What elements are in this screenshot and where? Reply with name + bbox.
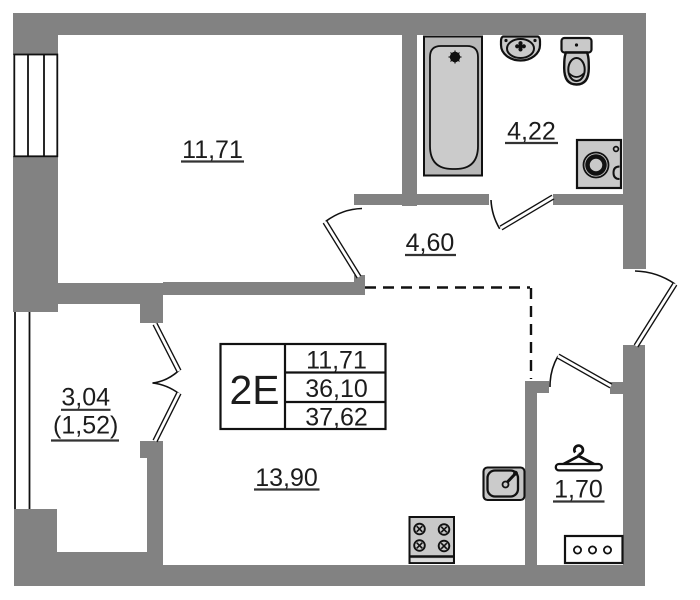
svg-text:36,10: 36,10 <box>305 375 368 403</box>
svg-text:13,90: 13,90 <box>255 464 318 492</box>
svg-text:37,62: 37,62 <box>305 404 368 432</box>
svg-text:1,70: 1,70 <box>554 476 603 504</box>
svg-text:4,60: 4,60 <box>406 229 455 257</box>
svg-text:2E: 2E <box>230 367 280 413</box>
svg-text:(1,52): (1,52) <box>53 412 118 440</box>
svg-text:11,71: 11,71 <box>182 136 243 164</box>
svg-text:11,71: 11,71 <box>306 347 367 375</box>
svg-text:4,22: 4,22 <box>507 118 556 146</box>
svg-text:3,04: 3,04 <box>61 384 110 412</box>
